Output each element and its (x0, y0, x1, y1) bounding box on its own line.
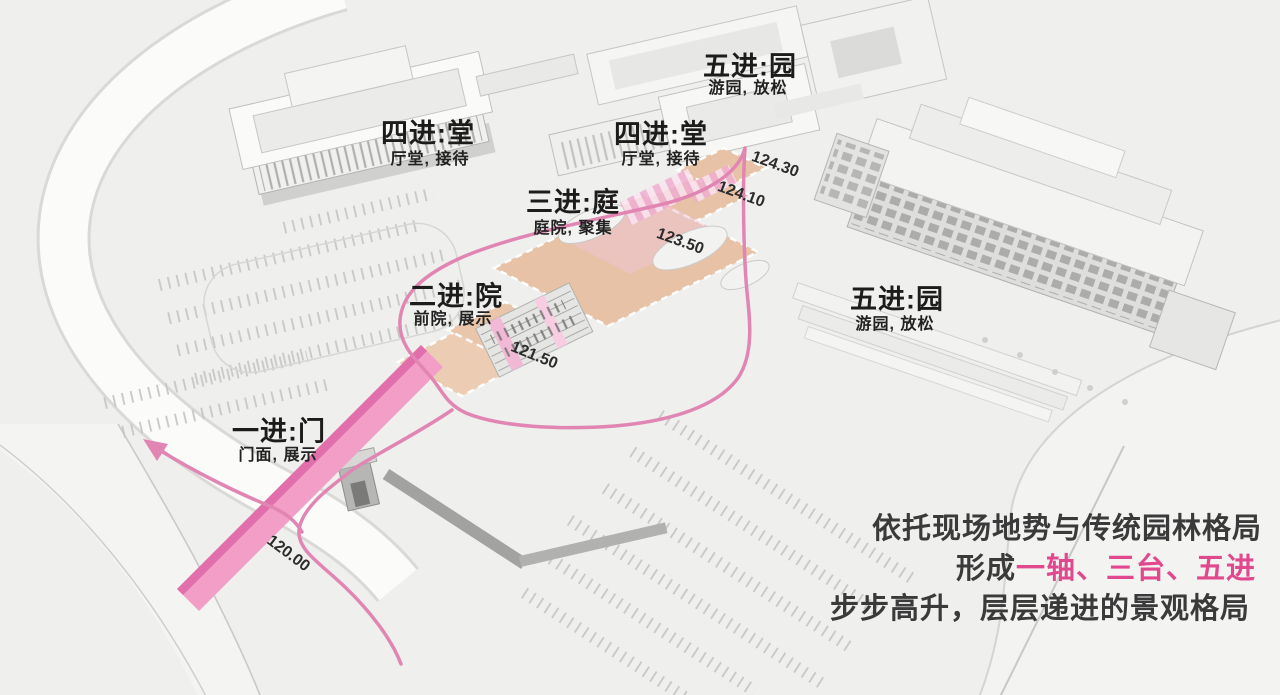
stage-5-top-subtitle: 游园, 放松 (709, 74, 788, 98)
stage-4-left-subtitle: 厅堂, 接待 (391, 145, 470, 169)
slide-canvas: 一进:门 门面, 展示 二进:院 前院, 展示 三进:庭 庭院, 聚集 四进:堂… (0, 0, 1280, 695)
caption-line-1: 依托现场地势与传统园林格局 (872, 505, 1262, 547)
caption-line-2: 形成一轴、三台、五进 (956, 545, 1256, 587)
stage-2-subtitle: 前院, 展示 (414, 305, 493, 329)
caption-line-3: 步步高升，层层递进的景观格局 (830, 585, 1250, 627)
caption-line-2-prefix: 形成 (956, 553, 1016, 585)
caption-line-2-highlight: 一轴、三台、五进 (1016, 553, 1256, 585)
stage-4-right-subtitle: 厅堂, 接待 (622, 145, 701, 169)
stage-5-right-subtitle: 游园, 放松 (856, 310, 935, 334)
stage-3-subtitle: 庭院, 聚集 (534, 214, 613, 238)
stage-1-subtitle: 门面, 展示 (239, 441, 318, 465)
